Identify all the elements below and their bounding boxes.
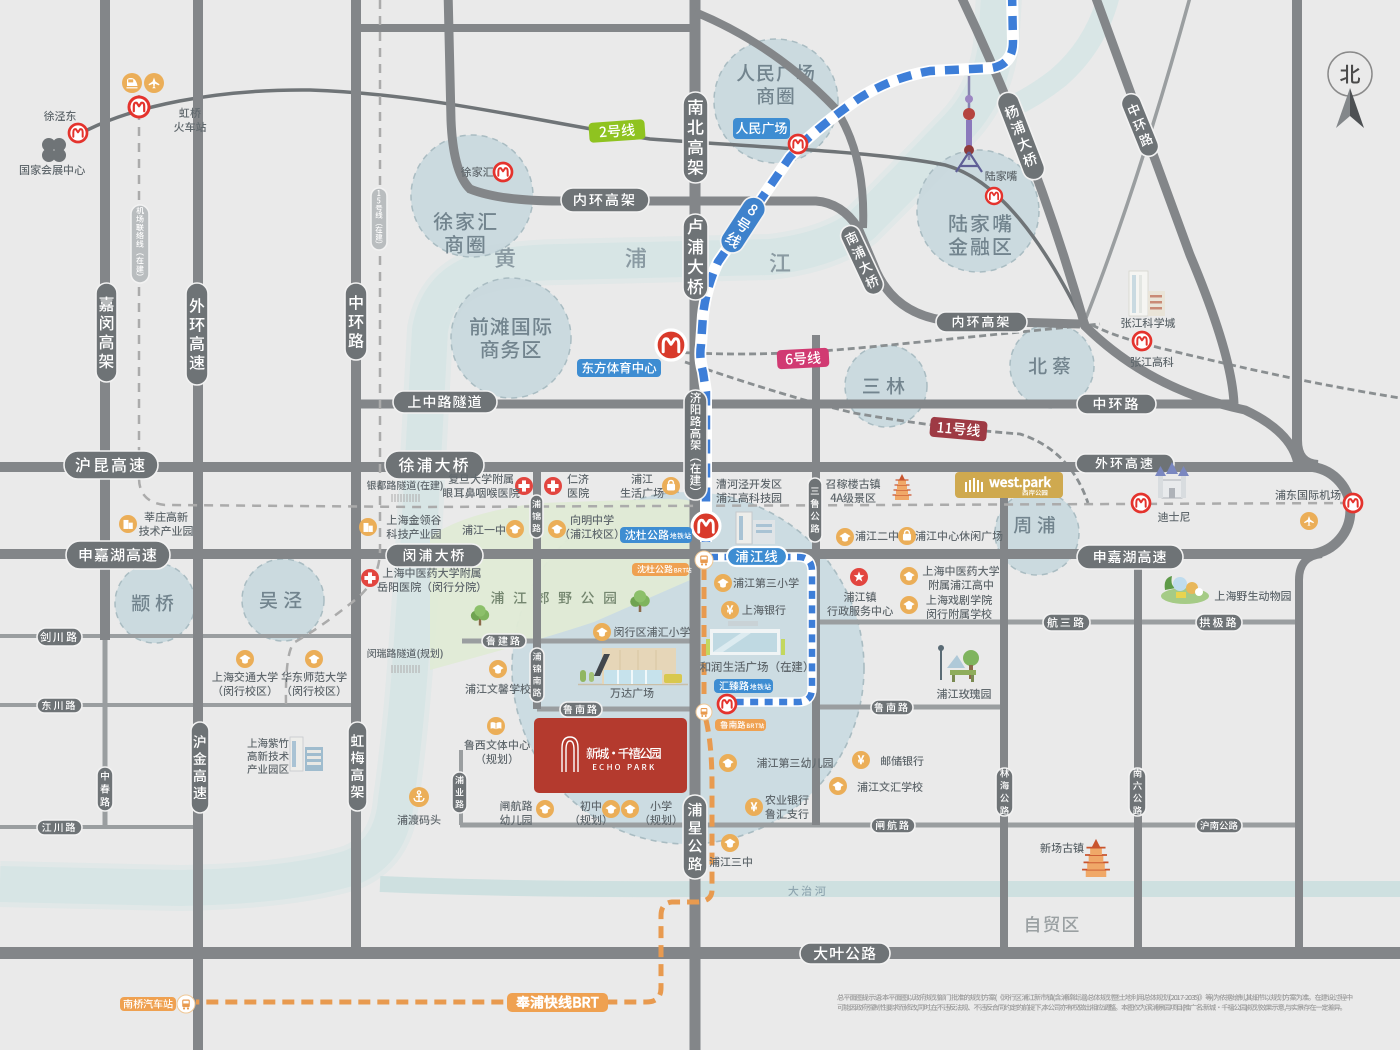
svg-text:桥: 桥 xyxy=(687,273,704,298)
svg-text:东方体育中心: 东方体育中心 xyxy=(581,358,657,377)
svg-text:︶: ︶ xyxy=(690,484,702,500)
svg-text:鲁南路: 鲁南路 xyxy=(563,701,599,716)
svg-text:速: 速 xyxy=(193,783,208,803)
svg-text:张江科学城: 张江科学城 xyxy=(1121,315,1177,331)
svg-text:自贸区: 自贸区 xyxy=(1024,911,1081,937)
svg-text:浦江线: 浦江线 xyxy=(735,546,779,566)
svg-text:大叶公路: 大叶公路 xyxy=(813,943,877,964)
svg-text:可能因政府强制性要求而修改,同时,在不违反法规、不违反合同约: 可能因政府强制性要求而修改,同时,在不违反法规、不违反合同约定的前提下,本公司亦… xyxy=(837,1003,1347,1013)
svg-text:闵行附属学校: 闵行附属学校 xyxy=(926,606,992,622)
svg-text:周浦: 周浦 xyxy=(1013,511,1061,538)
svg-text:吴泾: 吴泾 xyxy=(259,586,307,613)
svg-text:银都路隧道(在建): 银都路隧道(在建) xyxy=(366,477,443,492)
svg-text:架: 架 xyxy=(687,154,704,179)
svg-text:¥: ¥ xyxy=(858,752,865,768)
svg-text:地铁站: 地铁站 xyxy=(750,682,771,692)
svg-text:技术产业园: 技术产业园 xyxy=(139,523,194,539)
svg-text:鲁南路: 鲁南路 xyxy=(720,719,746,731)
svg-text:（闵行校区）: （闵行校区） xyxy=(212,683,278,699)
svg-text:徐泾东: 徐泾东 xyxy=(44,108,77,124)
svg-text:闵瑞路隧道(规划): 闵瑞路隧道(规划) xyxy=(366,645,443,660)
svg-text:商圈: 商圈 xyxy=(444,229,488,258)
svg-text:幼儿园: 幼儿园 xyxy=(500,812,533,828)
svg-text:附属浦江高中: 附属浦江高中 xyxy=(928,577,994,593)
svg-text:航三路: 航三路 xyxy=(1047,614,1086,630)
svg-text:（浦江校区）: （浦江校区） xyxy=(559,526,625,542)
svg-text:速: 速 xyxy=(189,349,205,373)
svg-text:徐家汇: 徐家汇 xyxy=(461,164,494,180)
svg-text:北: 北 xyxy=(1340,59,1361,89)
svg-text:三林: 三林 xyxy=(862,372,910,399)
svg-text:人民广场: 人民广场 xyxy=(735,118,787,137)
svg-text:浦江三中: 浦江三中 xyxy=(708,854,753,870)
svg-text:沈杜公路: 沈杜公路 xyxy=(625,527,669,543)
svg-text:BRT站: BRT站 xyxy=(674,565,693,574)
svg-text:浦江高科技园: 浦江高科技园 xyxy=(715,490,782,506)
svg-text:浦江一中: 浦江一中 xyxy=(461,522,506,538)
svg-text:︶: ︶ xyxy=(136,272,144,283)
svg-text:上中路隧道: 上中路隧道 xyxy=(408,392,483,412)
svg-text:浦: 浦 xyxy=(625,241,647,273)
svg-text:路: 路 xyxy=(1000,803,1010,817)
svg-text:江川路: 江川路 xyxy=(42,819,78,834)
svg-text:国家会展中心: 国家会展中心 xyxy=(19,162,85,178)
svg-text:路: 路 xyxy=(687,853,702,874)
svg-text:科技产业园: 科技产业园 xyxy=(387,526,442,542)
svg-text:架: 架 xyxy=(98,348,114,372)
svg-text:（闵行校区）: （闵行校区） xyxy=(281,683,347,699)
svg-text:鲁建路: 鲁建路 xyxy=(486,633,522,648)
svg-text:金融区: 金融区 xyxy=(948,231,1014,260)
svg-text:商圈: 商圈 xyxy=(756,82,796,109)
svg-text:东川路: 东川路 xyxy=(42,697,78,712)
svg-text:路: 路 xyxy=(532,522,541,535)
svg-text:浦江二中: 浦江二中 xyxy=(854,528,899,544)
svg-text:大治河: 大治河 xyxy=(788,883,829,899)
svg-text:浦江文汇学校: 浦江文汇学校 xyxy=(856,779,923,795)
svg-text:北蔡: 北蔡 xyxy=(1028,352,1076,379)
svg-text:浦江文馨学校: 浦江文馨学校 xyxy=(464,681,531,697)
svg-text:申嘉湖高速: 申嘉湖高速 xyxy=(78,544,158,565)
svg-text:6号线: 6号线 xyxy=(785,348,822,370)
svg-text:西岸公园: 西岸公园 xyxy=(1022,487,1049,497)
svg-text:内环高架: 内环高架 xyxy=(573,190,637,210)
svg-text:闵浦大桥: 闵浦大桥 xyxy=(403,546,467,566)
svg-text:︶: ︶ xyxy=(375,239,383,250)
svg-text:拱极路: 拱极路 xyxy=(1200,614,1239,630)
svg-text:剑川路: 剑川路 xyxy=(40,629,79,645)
svg-text:新场古镇: 新场古镇 xyxy=(1040,840,1084,856)
svg-text:地铁站: 地铁站 xyxy=(670,532,691,542)
svg-text:陆家嘴: 陆家嘴 xyxy=(985,168,1018,184)
svg-text:中环路: 中环路 xyxy=(1093,394,1141,414)
svg-text:浦江第三小学: 浦江第三小学 xyxy=(732,575,799,591)
svg-text:路: 路 xyxy=(100,794,110,809)
svg-text:和润生活广场（在建）: 和润生活广场（在建） xyxy=(700,659,815,675)
svg-text:沪南公路: 沪南公路 xyxy=(1200,818,1239,832)
svg-text:南桥汽车站: 南桥汽车站 xyxy=(123,996,174,1011)
svg-text:浦江玫瑰园: 浦江玫瑰园 xyxy=(936,686,992,702)
svg-text:外环高速: 外环高速 xyxy=(1095,453,1155,472)
svg-text:4A级景区: 4A级景区 xyxy=(830,490,876,506)
svg-text:迪士尼: 迪士尼 xyxy=(1158,509,1191,525)
svg-text:申嘉湖高速: 申嘉湖高速 xyxy=(1093,547,1168,567)
svg-text:浦江郊野公园: 浦江郊野公园 xyxy=(491,588,626,608)
svg-text:岳阳医院（闵行分院）: 岳阳医院（闵行分院） xyxy=(377,579,487,595)
svg-text:架: 架 xyxy=(351,782,365,802)
svg-text:（规划）: （规划） xyxy=(639,812,683,828)
svg-text:江: 江 xyxy=(769,246,791,278)
svg-text:BRT站: BRT站 xyxy=(747,721,766,730)
svg-text:新城·千禧公园: 新城·千禧公园 xyxy=(586,743,662,762)
svg-text:¥: ¥ xyxy=(751,799,758,815)
svg-text:奉浦快线BRT: 奉浦快线BRT xyxy=(515,993,601,1013)
svg-text:闸航路: 闸航路 xyxy=(875,817,911,832)
svg-text:闵行区浦汇小学: 闵行区浦汇小学 xyxy=(614,624,691,640)
svg-text:邮储银行: 邮储银行 xyxy=(880,753,924,769)
svg-text:（规划）: （规划） xyxy=(475,751,519,767)
svg-text:汇臻路: 汇臻路 xyxy=(718,678,749,693)
svg-text:路: 路 xyxy=(348,327,364,351)
svg-text:颛桥: 颛桥 xyxy=(131,589,179,616)
svg-text:产业园区: 产业园区 xyxy=(247,762,289,777)
svg-text:ECHO PARK: ECHO PARK xyxy=(592,762,656,773)
svg-text:内环高架: 内环高架 xyxy=(951,312,1011,331)
svg-text:路: 路 xyxy=(455,798,464,811)
svg-text:路: 路 xyxy=(1133,803,1143,817)
svg-text:2号线: 2号线 xyxy=(598,120,635,142)
svg-text:¥: ¥ xyxy=(727,602,734,618)
svg-text:商务区: 商务区 xyxy=(480,334,543,363)
svg-text:万达广场: 万达广场 xyxy=(610,685,654,701)
svg-text:张江高科: 张江高科 xyxy=(1130,354,1174,370)
svg-text:生活广场: 生活广场 xyxy=(620,485,664,501)
svg-text:11号线: 11号线 xyxy=(936,417,982,441)
svg-text:浦渡码头: 浦渡码头 xyxy=(396,812,441,828)
svg-text:浦江中心休闲广场: 浦江中心休闲广场 xyxy=(914,528,1003,544)
svg-text:火车站: 火车站 xyxy=(174,119,207,135)
svg-text:沈杜公路: 沈杜公路 xyxy=(637,563,673,576)
svg-text:路: 路 xyxy=(810,521,820,535)
svg-text:眼耳鼻咽喉医院: 眼耳鼻咽喉医院 xyxy=(443,485,520,501)
svg-text:路: 路 xyxy=(532,686,541,699)
svg-text:上海银行: 上海银行 xyxy=(742,602,786,618)
svg-text:浦江第三幼儿园: 浦江第三幼儿园 xyxy=(756,755,834,771)
svg-text:医院: 医院 xyxy=(567,485,589,501)
svg-text:上海野生动物园: 上海野生动物园 xyxy=(1215,588,1292,604)
svg-text:总平面图提示语:本平面图以政府规划部门批准的规划方案(《闵行: 总平面图提示语:本平面图以政府规划部门批准的规划方案(《闵行区浦江新市镇(含浦锦… xyxy=(837,993,1353,1003)
svg-text:鲁南路: 鲁南路 xyxy=(874,699,910,714)
svg-text:鲁汇支行: 鲁汇支行 xyxy=(765,806,809,822)
svg-text:行政服务中心: 行政服务中心 xyxy=(827,603,893,619)
svg-text:沪昆高速: 沪昆高速 xyxy=(75,452,147,476)
svg-text:浦东国际机场: 浦东国际机场 xyxy=(1274,487,1341,503)
